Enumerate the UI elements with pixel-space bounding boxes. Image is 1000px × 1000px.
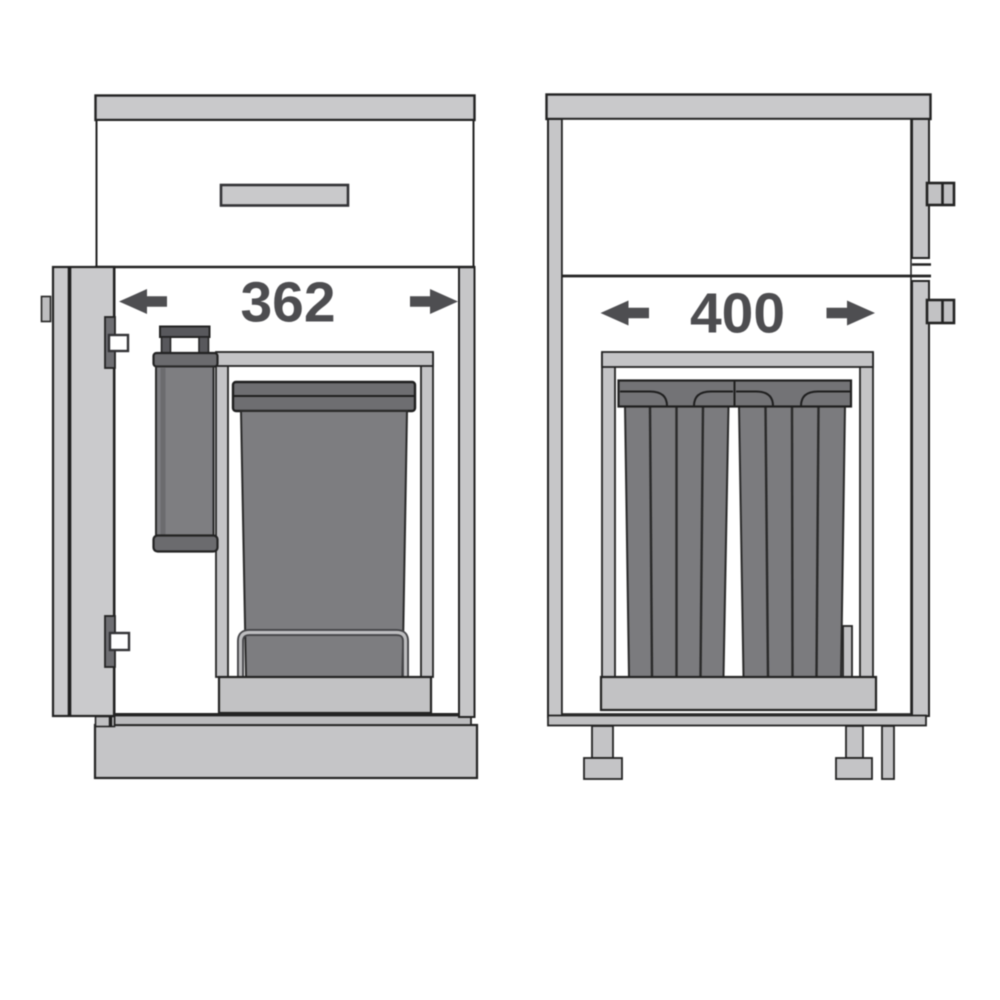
svg-text:362: 362: [240, 271, 335, 335]
svg-text:400: 400: [690, 282, 785, 346]
